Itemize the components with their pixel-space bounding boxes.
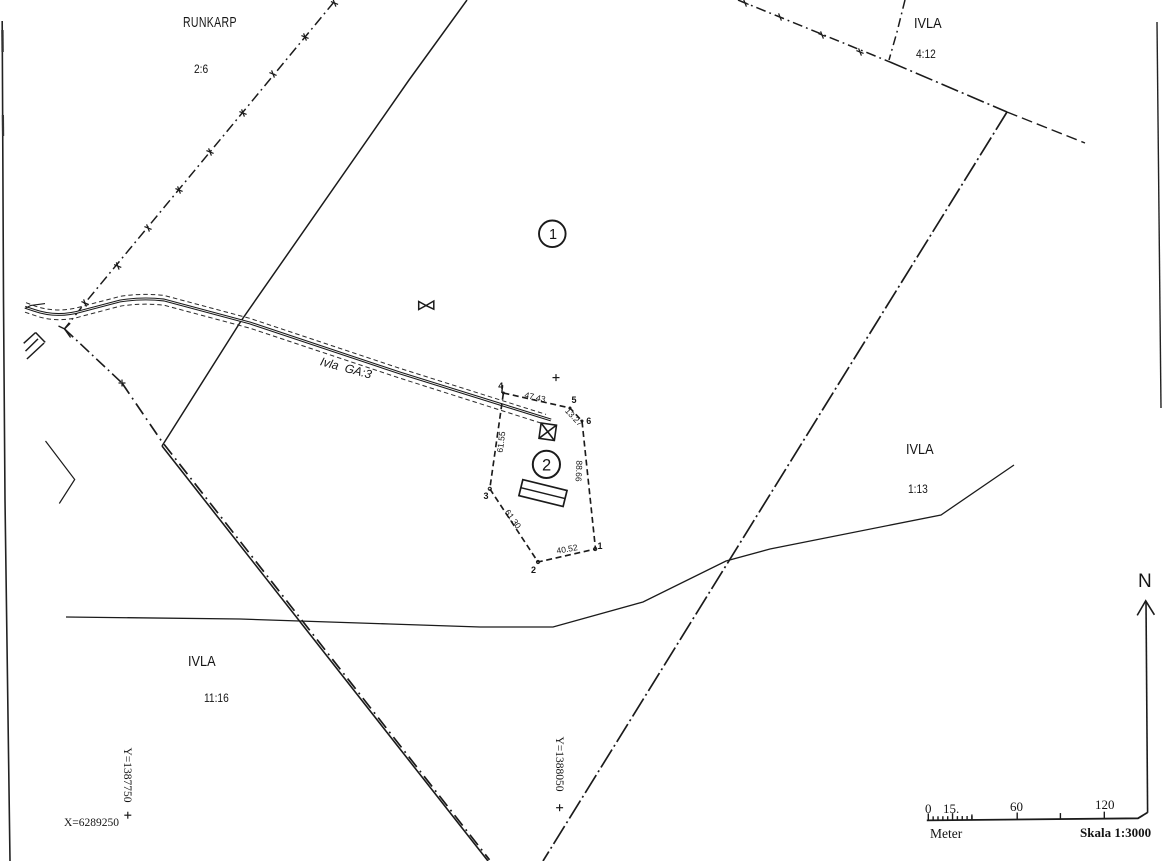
svg-text:2: 2 bbox=[542, 456, 551, 474]
svg-text:1: 1 bbox=[549, 227, 557, 243]
